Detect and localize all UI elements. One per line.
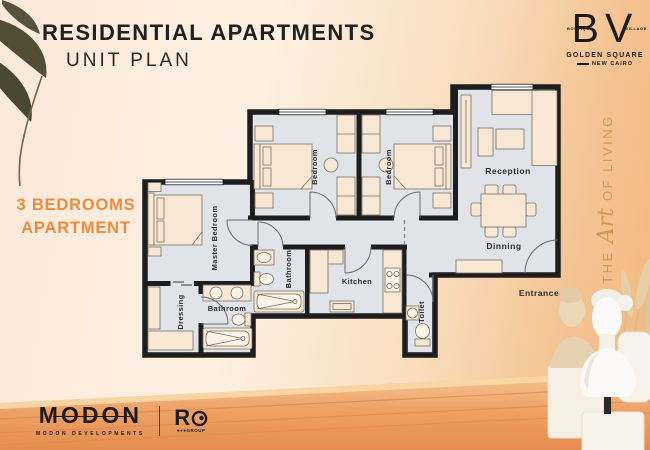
window-bedroom1 — [279, 109, 326, 115]
bv-new-cairo: NEW CAIRO — [592, 61, 633, 67]
label-bedroom2: Bedroom — [384, 149, 393, 185]
logo-divider — [159, 406, 161, 436]
label-bathroom1: Bathroom — [208, 304, 247, 313]
rc-group-logo: R ●●●GROUP — [174, 408, 208, 434]
tagline: THE Art OF LIVING — [594, 86, 620, 312]
label-master-bedroom: Master Bedroom — [210, 206, 219, 271]
bv-boutique: BOUTIQUE — [567, 27, 593, 31]
tagline-of-living: OF LIVING — [600, 114, 615, 201]
label-bathroom2: Bathroom — [284, 250, 293, 289]
floor-plan: Bedroom Bedroom Master Bedroom Reception… — [140, 75, 570, 365]
label-bedroom1: Bedroom — [310, 149, 319, 185]
page-subtitle: UNIT PLAN — [66, 50, 192, 72]
unit-type-line1: 3 BEDROOMS — [6, 196, 146, 215]
bv-location-line2: NEW CAIRO — [563, 61, 647, 67]
unit-type-line2: APARTMENT — [6, 219, 146, 238]
rc-group-text: GROUP — [187, 428, 206, 433]
bv-village: VILLAGE — [625, 27, 647, 31]
modon-wordmark: MODON — [36, 404, 145, 427]
label-kitchen: Kitchen — [342, 277, 372, 286]
rc-group-subtitle: ●●●GROUP — [174, 428, 208, 433]
modon-subtitle: MODON DEVELOPMENTS — [36, 431, 145, 437]
bv-location-line1: GOLDEN SQUARE — [563, 52, 647, 59]
label-reception: Reception — [485, 166, 531, 176]
label-toilet: Toilet — [417, 301, 426, 323]
rc-letter: R — [174, 408, 190, 428]
bv-logo-letters: BV BOUTIQUE VILLAGE — [563, 8, 647, 49]
window-reception — [491, 84, 533, 90]
label-entrance: Entrance — [519, 288, 559, 298]
dash-icon — [577, 63, 589, 65]
label-dinning: Dinning — [486, 241, 521, 251]
unit-type: 3 BEDROOMS APARTMENT — [6, 196, 146, 238]
leaf-icon — [0, 58, 32, 122]
bv-logo-words: BOUTIQUE VILLAGE — [567, 27, 647, 31]
tagline-the: THE — [600, 250, 615, 284]
footer-logos: MODON MODON DEVELOPMENTS R ●●●GROUP — [36, 404, 208, 437]
tagline-art: Art — [596, 208, 618, 243]
rc-swirl-icon — [191, 410, 208, 427]
pocket-door — [171, 280, 194, 288]
modon-logo: MODON MODON DEVELOPMENTS — [36, 404, 145, 437]
rc-dots: ●●● — [177, 428, 187, 433]
window-bedroom2 — [386, 109, 433, 115]
flyer: RESIDENTIAL APARTMENTS UNIT PLAN BV BOUT… — [0, 0, 650, 450]
page-title: RESIDENTIAL APARTMENTS — [42, 20, 376, 46]
window-master — [165, 179, 223, 185]
bv-logo: BV BOUTIQUE VILLAGE GOLDEN SQUARE NEW CA… — [563, 8, 647, 67]
label-dressing: Dressing — [176, 294, 185, 329]
